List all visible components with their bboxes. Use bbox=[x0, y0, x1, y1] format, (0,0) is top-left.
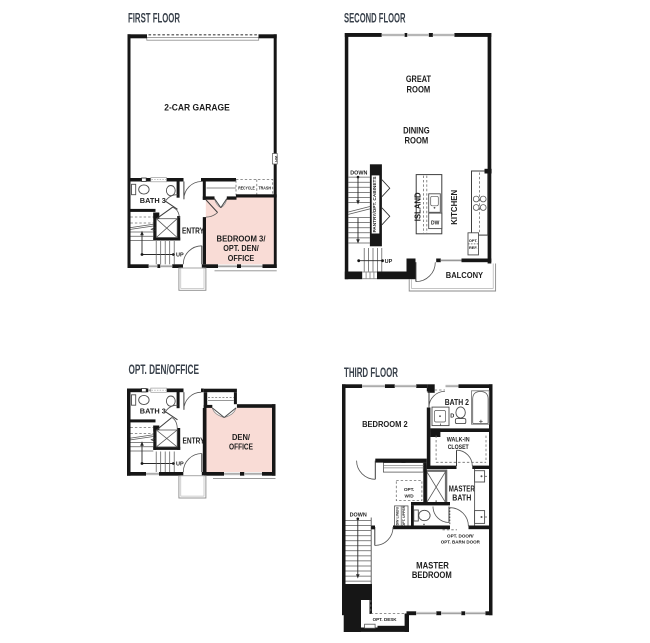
svg-text:TRASH: TRASH bbox=[258, 186, 271, 191]
svg-text:OFFICE: OFFICE bbox=[228, 253, 255, 263]
svg-text:FIRST FLOOR: FIRST FLOOR bbox=[128, 10, 180, 25]
svg-text:DOWN: DOWN bbox=[350, 512, 367, 518]
svg-text:ISLAND: ISLAND bbox=[414, 192, 423, 221]
svg-text:SECOND FLOOR: SECOND FLOOR bbox=[344, 10, 406, 25]
svg-text:OPT. DESK: OPT. DESK bbox=[373, 617, 398, 623]
svg-text:BALCONY: BALCONY bbox=[446, 271, 484, 280]
svg-text:BEDROOM 3/: BEDROOM 3/ bbox=[217, 233, 267, 243]
svg-text:THIRD FLOOR: THIRD FLOOR bbox=[344, 365, 398, 380]
svg-text:WH: WH bbox=[274, 156, 278, 162]
svg-text:ENTRY: ENTRY bbox=[182, 227, 204, 236]
svg-text:DW: DW bbox=[431, 221, 440, 227]
svg-text:UP: UP bbox=[176, 253, 184, 259]
svg-text:OPT. DEN/: OPT. DEN/ bbox=[223, 243, 259, 253]
svg-text:ROOM: ROOM bbox=[405, 135, 429, 145]
svg-text:OPT.: OPT. bbox=[404, 487, 414, 492]
svg-text:MASTER: MASTER bbox=[416, 560, 449, 570]
svg-text:GREAT: GREAT bbox=[406, 74, 431, 84]
svg-text:PANTRY/OPT. CABINETS: PANTRY/OPT. CABINETS bbox=[372, 176, 377, 232]
svg-text:DW LINEN/: DW LINEN/ bbox=[395, 507, 399, 525]
svg-text:RECYCLE: RECYCLE bbox=[238, 186, 255, 191]
svg-text:2-CAR GARAGE: 2-CAR GARAGE bbox=[164, 102, 230, 112]
svg-text:DINING: DINING bbox=[403, 126, 430, 136]
svg-text:OPT. UPPER: OPT. UPPER bbox=[402, 505, 406, 526]
svg-text:OPT. BARN DOOR: OPT. BARN DOOR bbox=[441, 539, 481, 545]
svg-text:W/D: W/D bbox=[405, 493, 415, 498]
svg-text:DOWN: DOWN bbox=[350, 170, 367, 176]
svg-text:BATH 3: BATH 3 bbox=[140, 196, 166, 205]
svg-text:DEN/: DEN/ bbox=[232, 432, 251, 442]
svg-text:WALK-IN: WALK-IN bbox=[447, 437, 470, 444]
svg-text:REF.: REF. bbox=[469, 245, 477, 250]
svg-text:BEDROOM 2: BEDROOM 2 bbox=[362, 419, 408, 429]
svg-text:BATH 2: BATH 2 bbox=[445, 398, 470, 407]
svg-text:D: D bbox=[450, 414, 454, 420]
svg-text:ENTRY: ENTRY bbox=[183, 437, 205, 446]
svg-text:BATH 3: BATH 3 bbox=[140, 406, 166, 415]
svg-text:OFFICE: OFFICE bbox=[229, 442, 253, 452]
svg-text:UP: UP bbox=[385, 259, 393, 265]
svg-text:KITCHEN: KITCHEN bbox=[450, 190, 459, 225]
svg-text:OPT.: OPT. bbox=[469, 238, 478, 243]
svg-text:OPT. DEN/OFFICE: OPT. DEN/OFFICE bbox=[129, 362, 200, 377]
svg-text:ROOM: ROOM bbox=[407, 84, 431, 94]
svg-text:OPT. DOOR/: OPT. DOOR/ bbox=[447, 533, 474, 539]
svg-text:UP: UP bbox=[176, 462, 184, 468]
svg-text:BATH: BATH bbox=[452, 492, 471, 502]
svg-text:BEDROOM: BEDROOM bbox=[412, 570, 452, 580]
